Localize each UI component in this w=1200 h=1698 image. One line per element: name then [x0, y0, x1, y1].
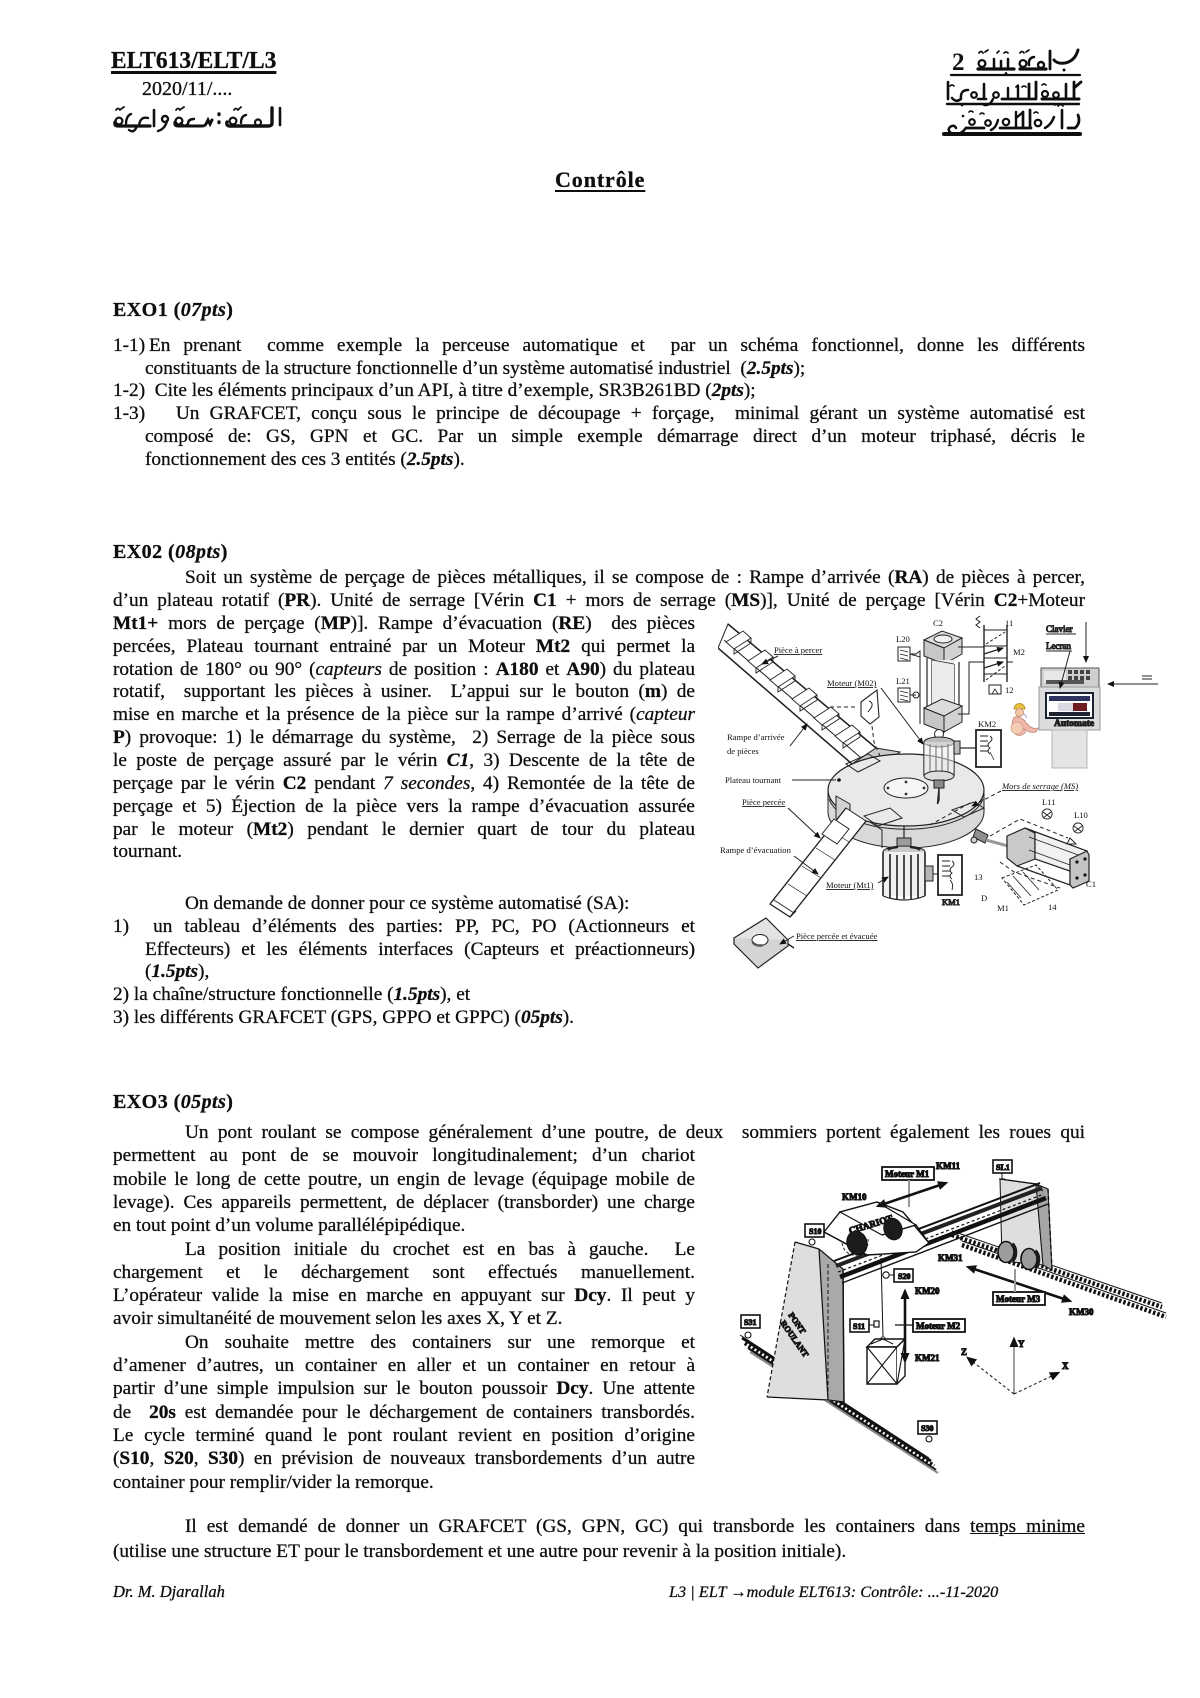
- svg-text:Mors de serrage (MS): Mors de serrage (MS): [1001, 781, 1078, 791]
- svg-text:M1: M1: [997, 903, 1009, 913]
- svg-text:C1: C1: [1086, 879, 1096, 889]
- svg-text:12: 12: [1005, 685, 1014, 695]
- svg-text:Moteur M1: Moteur M1: [885, 1169, 930, 1179]
- svg-text:SL1: SL1: [996, 1163, 1010, 1172]
- svg-text:KM20: KM20: [915, 1286, 940, 1296]
- svg-text:Moteur M3: Moteur M3: [996, 1294, 1041, 1304]
- svg-text:S20: S20: [898, 1272, 910, 1281]
- svg-text:L21: L21: [896, 676, 910, 686]
- svg-text:L20: L20: [896, 634, 910, 644]
- svg-text:L11: L11: [1042, 797, 1056, 807]
- svg-text:Rampe d’arrivée: Rampe d’arrivée: [727, 732, 785, 742]
- svg-text:Rampe d’évacuation: Rampe d’évacuation: [720, 845, 792, 855]
- svg-text:KM11: KM11: [936, 1161, 960, 1171]
- svg-text:Z: Z: [961, 1347, 967, 1357]
- svg-text:C2: C2: [933, 618, 943, 628]
- svg-text:Pièce percée: Pièce percée: [742, 797, 785, 807]
- svg-text:Automate: Automate: [1054, 719, 1094, 729]
- svg-text:KM1: KM1: [942, 897, 960, 907]
- svg-text:Y: Y: [1018, 1339, 1025, 1349]
- svg-text:2: 2: [952, 49, 965, 76]
- svg-text:S11: S11: [853, 1322, 865, 1331]
- svg-text:KM2: KM2: [978, 719, 996, 729]
- svg-text:Moteur (Mt1): Moteur (Mt1): [826, 880, 874, 890]
- svg-text:KM10: KM10: [842, 1192, 867, 1202]
- svg-text:L10: L10: [1074, 810, 1088, 820]
- svg-text:KM21: KM21: [915, 1353, 940, 1363]
- svg-text:KM30: KM30: [1069, 1307, 1094, 1317]
- svg-text:11: 11: [1005, 618, 1013, 628]
- svg-text:Moteur M2: Moteur M2: [916, 1321, 961, 1331]
- svg-text:13: 13: [974, 872, 983, 882]
- svg-text:14: 14: [1048, 902, 1057, 912]
- svg-text:Pièce percée et évacuée: Pièce percée et évacuée: [796, 931, 878, 941]
- svg-text:S30: S30: [921, 1424, 933, 1433]
- svg-text:X: X: [1062, 1361, 1069, 1371]
- svg-text:M2: M2: [1013, 647, 1025, 657]
- svg-text:Clavier: Clavier: [1046, 624, 1073, 634]
- svg-text:S10: S10: [809, 1227, 821, 1236]
- svg-text:de pièces: de pièces: [727, 746, 759, 756]
- svg-text:Plateau tournant: Plateau tournant: [725, 775, 782, 785]
- svg-text:Pièce à percer: Pièce à percer: [774, 645, 822, 655]
- svg-text:D: D: [981, 893, 987, 903]
- svg-text:KM31: KM31: [938, 1253, 963, 1263]
- svg-text:Moteur (M02): Moteur (M02): [827, 678, 877, 688]
- svg-text:Lecran: Lecran: [1046, 641, 1071, 651]
- svg-text:S31: S31: [744, 1318, 756, 1327]
